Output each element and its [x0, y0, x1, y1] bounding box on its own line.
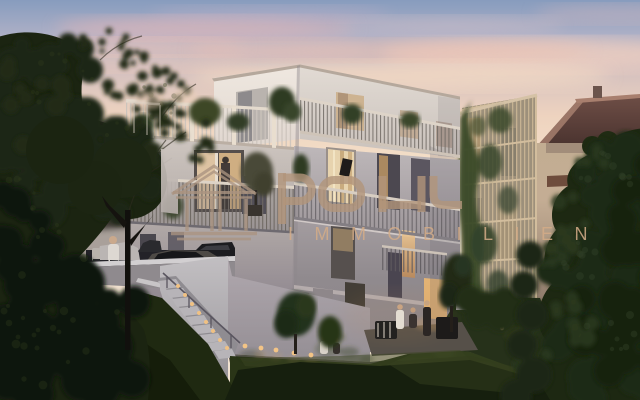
svg-text:IMMOBILIEN: IMMOBILIEN	[288, 224, 609, 244]
